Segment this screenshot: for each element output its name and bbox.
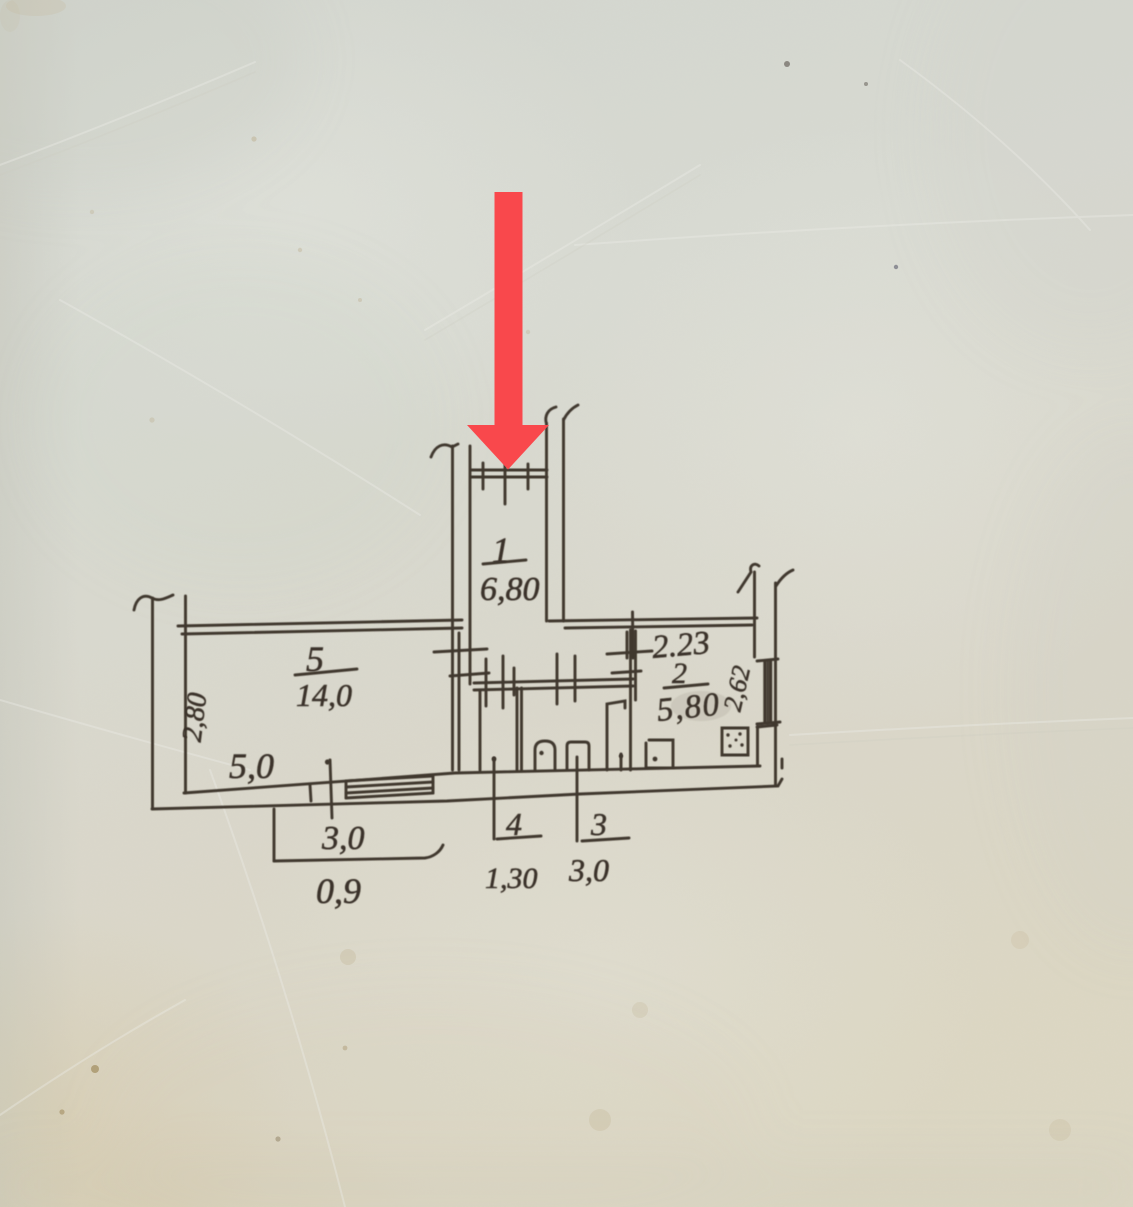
svg-text:3,0: 3,0 [321,820,365,857]
svg-text:2,80: 2,80 [177,691,214,743]
svg-text:4: 4 [506,806,522,842]
svg-text:3: 3 [590,806,607,842]
svg-text:2: 2 [672,657,687,690]
svg-text:5,0: 5,0 [229,746,274,786]
svg-text:5,80: 5,80 [655,686,722,728]
svg-text:5: 5 [306,639,324,679]
svg-text:3,0: 3,0 [568,852,609,888]
svg-text:1: 1 [492,530,510,570]
svg-text:0,9: 0,9 [316,871,361,911]
svg-text:14,0: 14,0 [296,677,352,713]
svg-text:1,30: 1,30 [485,862,538,895]
svg-text:6,80: 6,80 [480,571,540,608]
